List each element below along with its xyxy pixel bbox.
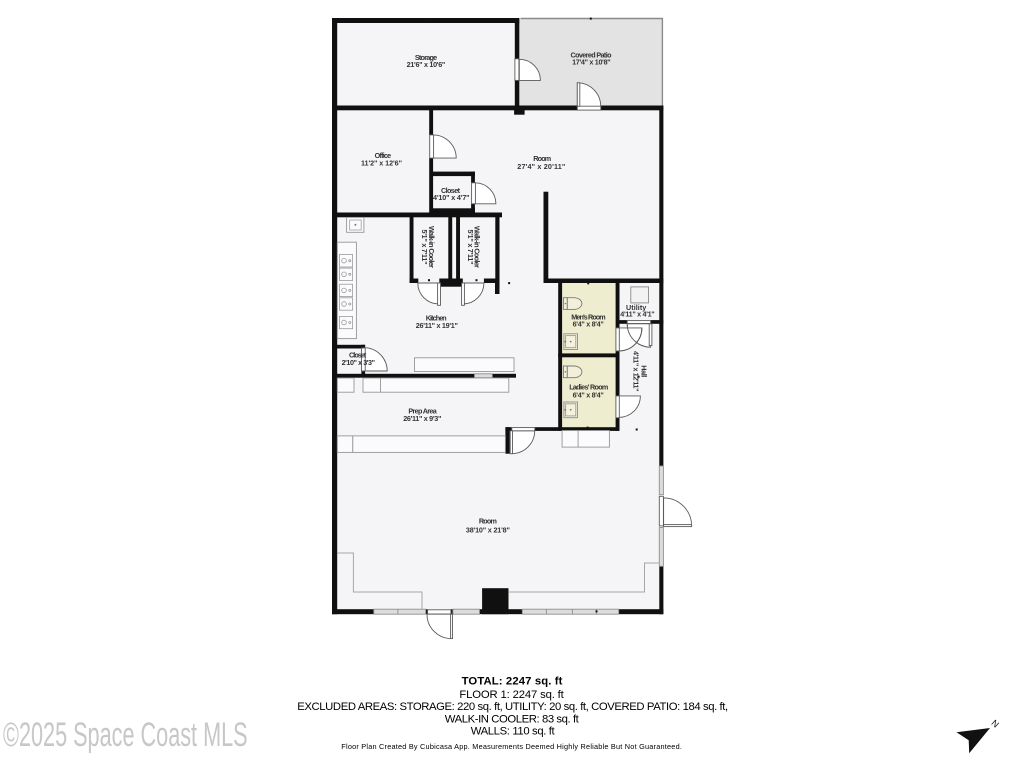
svg-text:21'6" x 10'6": 21'6" x 10'6"	[407, 60, 446, 69]
svg-text:26'11" x 9'3": 26'11" x 9'3"	[403, 414, 441, 423]
svg-text:5'1" x 7'11": 5'1" x 7'11"	[466, 229, 475, 264]
svg-text:Floor Plan Created By Cubicasa: Floor Plan Created By Cubicasa App. Meas…	[341, 742, 682, 751]
svg-text:17'4" x 10'8": 17'4" x 10'8"	[572, 58, 611, 67]
svg-text:Room: Room	[479, 516, 497, 525]
svg-text:WALK-IN COOLER: 83 sq. ft: WALK-IN COOLER: 83 sq. ft	[445, 713, 580, 725]
svg-text:TOTAL: 2247 sq. ft: TOTAL: 2247 sq. ft	[462, 676, 563, 688]
svg-text:4'10" x 4'7": 4'10" x 4'7"	[433, 193, 470, 202]
svg-text:4'11" x 12'11": 4'11" x 12'11"	[632, 351, 641, 392]
svg-text:38'10" x 21'8": 38'10" x 21'8"	[466, 525, 510, 534]
svg-text:©2025 Space Coast MLS: ©2025 Space Coast MLS	[3, 716, 248, 754]
svg-text:FLOOR 1: 2247 sq. ft: FLOOR 1: 2247 sq. ft	[459, 689, 564, 701]
svg-text:4'11" x 4'1": 4'11" x 4'1"	[620, 309, 654, 318]
svg-text:6'4" x 8'4": 6'4" x 8'4"	[573, 319, 604, 328]
svg-text:27'4" x 20'11": 27'4" x 20'11"	[517, 162, 565, 171]
svg-text:WALLS: 110 sq. ft: WALLS: 110 sq. ft	[471, 726, 556, 738]
svg-text:6'4" x 8'4": 6'4" x 8'4"	[573, 390, 604, 399]
svg-text:5'1" x 7'11": 5'1" x 7'11"	[420, 230, 429, 265]
svg-text:26'11" x 19'1": 26'11" x 19'1"	[416, 321, 458, 330]
svg-text:2'10" x 3'3": 2'10" x 3'3"	[342, 358, 375, 367]
svg-text:11'2" x 12'6": 11'2" x 12'6"	[361, 158, 402, 167]
svg-text:EXCLUDED AREAS: STORAGE: 220 s: EXCLUDED AREAS: STORAGE: 220 sq. ft, UTI…	[297, 701, 728, 713]
